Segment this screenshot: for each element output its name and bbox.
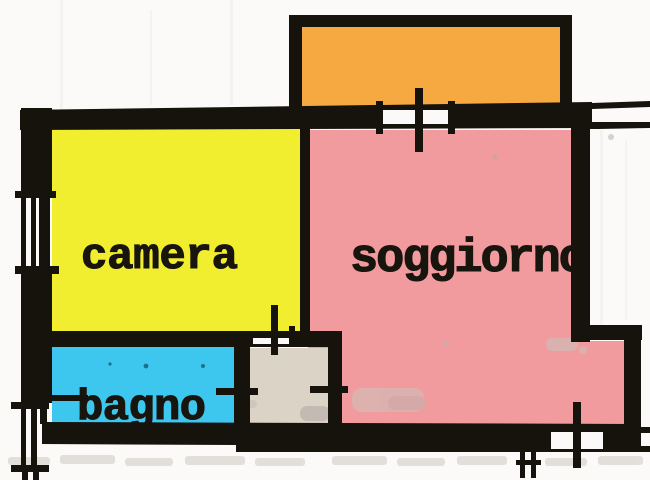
svg-text:camera: camera — [81, 232, 238, 282]
svg-text:soggiorno: soggiorno — [350, 233, 587, 286]
